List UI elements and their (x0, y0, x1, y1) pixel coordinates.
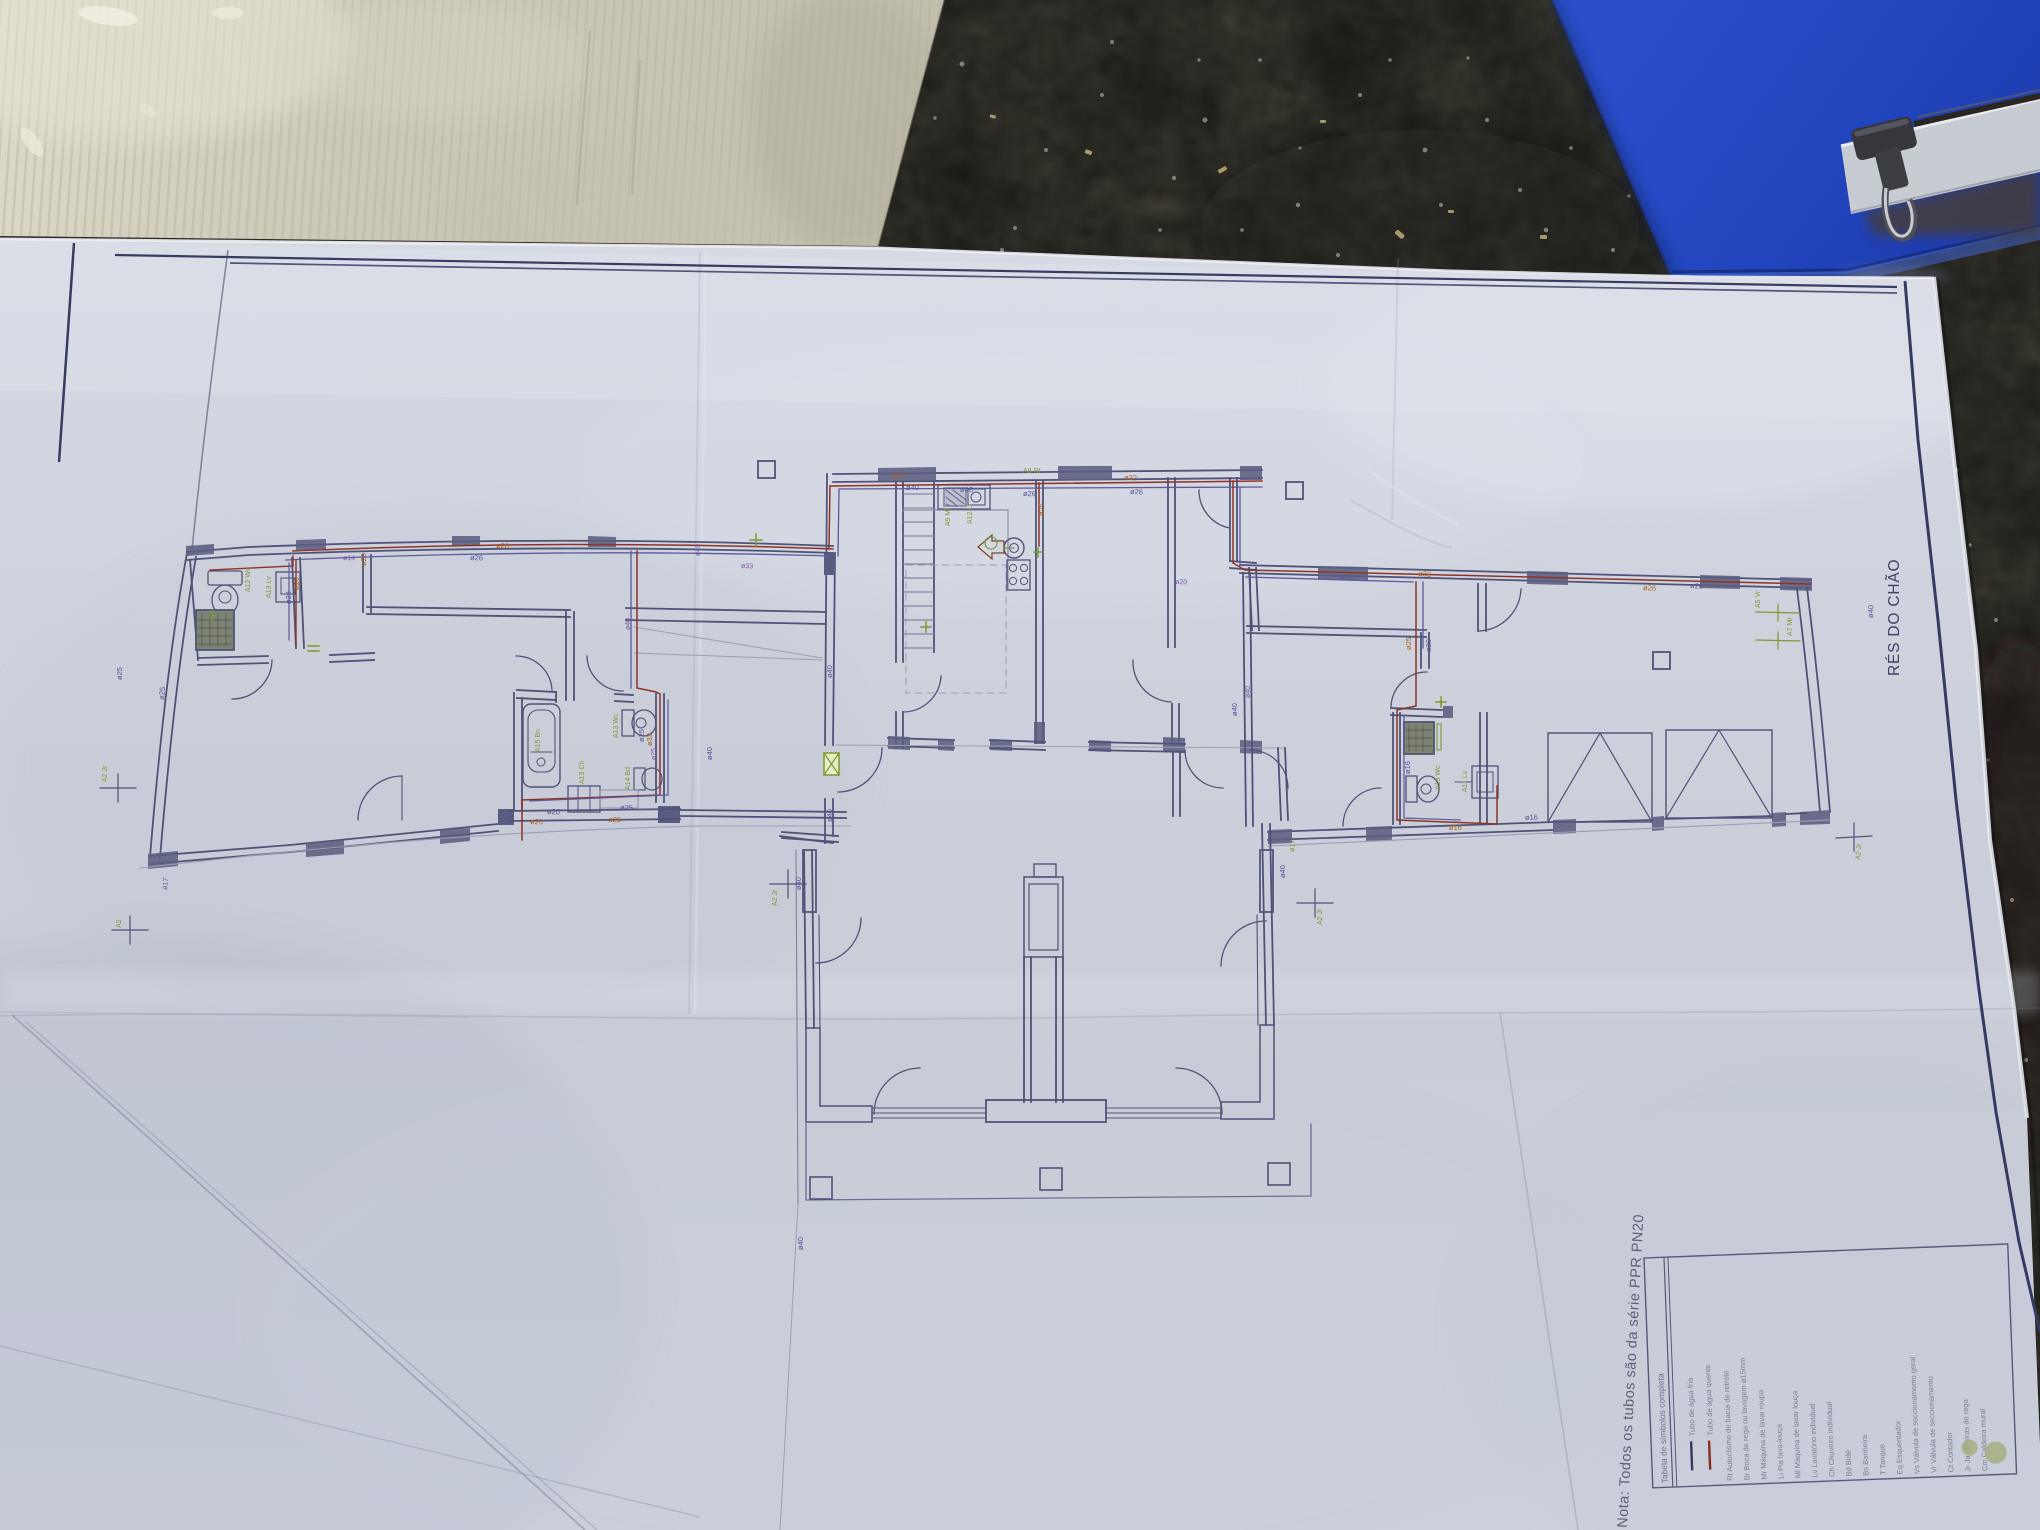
svg-text:Bd Bidé: Bd Bidé (1844, 1450, 1854, 1477)
svg-text:ø20: ø20 (547, 807, 560, 816)
svg-text:ø40: ø40 (825, 665, 834, 678)
svg-text:A13 Lv: A13 Lv (266, 576, 273, 598)
svg-text:ø17: ø17 (162, 877, 170, 890)
svg-text:ø16: ø16 (1525, 813, 1538, 822)
svg-text:ø25: ø25 (608, 815, 621, 824)
svg-text:ø40: ø40 (825, 809, 834, 822)
svg-text:ø40: ø40 (794, 877, 803, 890)
svg-text:RÉS DO CHÃO: RÉS DO CHÃO (1886, 559, 1903, 676)
svg-text:A13 Wc: A13 Wc (1435, 765, 1442, 790)
svg-text:ø20: ø20 (530, 817, 543, 826)
svg-text:A2: A2 (116, 919, 123, 928)
svg-text:A11 Lv: A11 Lv (1462, 770, 1469, 792)
svg-text:ø20: ø20 (292, 577, 301, 590)
svg-text:ø26: ø26 (1690, 581, 1703, 591)
svg-text:ø32: ø32 (892, 471, 905, 480)
svg-text:ø26: ø26 (1340, 573, 1353, 583)
svg-text:ø40: ø40 (1245, 686, 1252, 698)
svg-text:ø25: ø25 (651, 748, 658, 760)
svg-text:ø40: ø40 (1230, 703, 1239, 716)
svg-text:ø26: ø26 (1643, 583, 1656, 593)
svg-text:A9 Rt: A9 Rt (1023, 468, 1041, 475)
svg-text:A2 Jr: A2 Jr (1317, 908, 1324, 925)
svg-text:ø40: ø40 (960, 485, 973, 494)
svg-text:ø40: ø40 (1866, 605, 1875, 618)
svg-text:ø25: ø25 (115, 667, 124, 680)
svg-text:A2 Jr: A2 Jr (102, 765, 109, 782)
svg-text:ø25: ø25 (284, 591, 293, 604)
svg-text:A12 Ll: A12 Ll (967, 504, 974, 524)
svg-text:ø33: ø33 (741, 563, 753, 570)
svg-text:ø25: ø25 (1404, 637, 1413, 650)
svg-text:ø40: ø40 (796, 1237, 805, 1250)
svg-text:ø16: ø16 (1403, 761, 1412, 774)
svg-text:A14 Bd: A14 Bd (625, 767, 632, 790)
svg-text:ø40: ø40 (705, 747, 714, 760)
svg-text:T Tanque: T Tanque (1877, 1444, 1887, 1475)
svg-text:ø25: ø25 (1037, 503, 1046, 516)
svg-text:ø32: ø32 (645, 733, 654, 746)
svg-text:ø20: ø20 (1175, 579, 1187, 586)
svg-text:ø32: ø32 (1418, 569, 1431, 579)
svg-text:A7 Mr: A7 Mr (1787, 617, 1794, 636)
svg-text:ø26: ø26 (1130, 487, 1143, 496)
svg-text:A9 Ml: A9 Ml (945, 508, 952, 526)
svg-text:ø20: ø20 (1424, 639, 1433, 652)
svg-text:ø26: ø26 (470, 553, 483, 562)
svg-text:A15 Bn: A15 Bn (535, 729, 542, 752)
svg-text:ø26: ø26 (1023, 489, 1036, 498)
svg-text:A13 Ch: A13 Ch (579, 761, 586, 784)
svg-text:ø20: ø20 (496, 541, 509, 550)
svg-text:ø40: ø40 (625, 618, 632, 630)
svg-text:ø16: ø16 (209, 610, 216, 622)
svg-text:ø25: ø25 (620, 803, 633, 812)
svg-text:ø25: ø25 (637, 729, 646, 742)
svg-text:A12 Wc: A12 Wc (245, 567, 252, 592)
svg-text:ø40: ø40 (906, 483, 919, 492)
svg-text:ø20: ø20 (359, 553, 368, 566)
svg-text:Ct Contador: Ct Contador (1945, 1431, 1956, 1472)
svg-text:ø40: ø40 (695, 544, 702, 556)
svg-text:A5 Vr: A5 Vr (1755, 590, 1762, 608)
svg-text:A2 Jr: A2 Jr (1855, 843, 1863, 861)
svg-text:ø17: ø17 (1289, 839, 1297, 852)
svg-text:A13 Wc: A13 Wc (613, 713, 620, 738)
svg-text:ø14: ø14 (343, 555, 355, 562)
svg-text:Bs Banheira: Bs Banheira (1860, 1434, 1871, 1476)
svg-text:ø25: ø25 (157, 687, 167, 701)
svg-text:ø16: ø16 (1449, 823, 1462, 832)
svg-text:A2 Jr: A2 Jr (772, 889, 779, 906)
svg-text:ø40: ø40 (1278, 865, 1287, 878)
svg-text:ø32: ø32 (1124, 473, 1137, 482)
